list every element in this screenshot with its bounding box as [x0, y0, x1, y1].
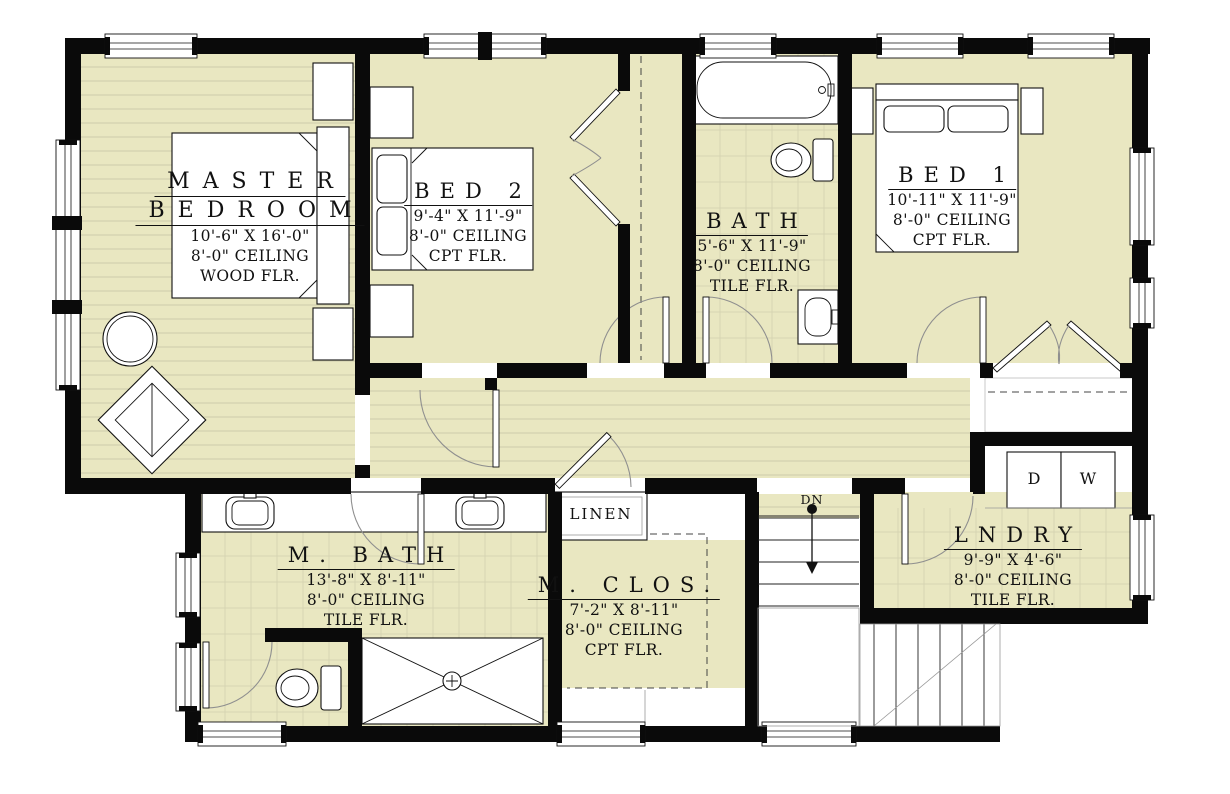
toilet [771, 139, 833, 181]
room-ceiling: 8'-0" CEILING [693, 256, 811, 276]
window [762, 722, 856, 746]
bathtub [690, 56, 838, 124]
wall [745, 492, 759, 726]
window-mullion [52, 300, 82, 314]
window [1028, 34, 1114, 58]
room-name: M. BATH [278, 542, 455, 570]
wall [65, 38, 1150, 54]
window [1130, 278, 1154, 328]
wall [664, 363, 682, 378]
wall [485, 378, 497, 390]
wall [970, 432, 985, 492]
wall [645, 478, 757, 494]
room-label-mclos: M. CLOS. 7'-2" X 8'-11" 8'-0" CEILING CP… [528, 572, 720, 660]
window [1130, 148, 1154, 245]
room-name: BATH [696, 208, 808, 236]
room-label-lndry: LNDRY 9'-9" X 4'-6" 8'-0" CEILING TILE F… [944, 522, 1082, 610]
mbath-vanity [202, 490, 546, 532]
wall [618, 224, 630, 363]
washer-label: W [1080, 469, 1096, 488]
wall [770, 363, 838, 378]
room-flooring: TILE FLR. [693, 276, 811, 296]
wall [860, 492, 874, 608]
nightstand [313, 308, 353, 360]
bath-sink [798, 290, 838, 344]
stairs-down-label: DN [801, 492, 824, 507]
room-label-bed1: BED 1 10'-11" X 11'-9" 8'-0" CEILING CPT… [887, 162, 1017, 250]
wall [852, 478, 905, 494]
room-name: BED 1 [888, 162, 1016, 190]
nightstand [851, 88, 873, 134]
bed1-closet [985, 378, 1133, 432]
wall [497, 363, 587, 378]
wall [355, 465, 370, 478]
room-ceiling: 8'-0" CEILING [887, 210, 1017, 230]
window [557, 722, 645, 746]
room-dimensions: 9'-4" X 11'-9" [404, 206, 532, 226]
wall [65, 478, 351, 494]
room-flooring: TILE FLR. [944, 590, 1082, 610]
room-ceiling: 8'-0" CEILING [278, 590, 455, 610]
wall [852, 363, 907, 378]
wall [618, 53, 630, 91]
nightstand [370, 87, 413, 138]
toilet [276, 666, 341, 710]
room-flooring: CPT FLR. [404, 246, 532, 266]
nightstand [1021, 88, 1043, 134]
room-dimensions: 10'-6" X 16'-0" [135, 226, 364, 246]
dryer-label: D [1028, 469, 1041, 488]
stairs-down-arrowhead [806, 562, 818, 574]
wall [370, 363, 422, 378]
room-dimensions: 10'-11" X 11'-9" [887, 190, 1017, 210]
shower [362, 638, 543, 724]
room-dimensions: 13'-8" X 8'-11" [278, 570, 455, 590]
room-name: BED 2 [404, 178, 532, 206]
room-dimensions: 5'-6" X 11'-9" [693, 236, 811, 256]
room-flooring: CPT FLR. [887, 230, 1017, 250]
room-name: BEDROOM [135, 197, 364, 226]
floor-plan-drawing [0, 0, 1230, 794]
room-name: LNDRY [944, 522, 1082, 550]
room-dimensions: 7'-2" X 8'-11" [528, 600, 720, 620]
room-label-master-bedroom: MASTER BEDROOM 10'-6" X 16'-0" 8'-0" CEI… [135, 168, 364, 286]
hall-floor [370, 378, 970, 478]
window [1130, 515, 1154, 600]
wall [980, 432, 1133, 446]
round-table [103, 312, 157, 366]
room-ceiling: 8'-0" CEILING [404, 226, 532, 246]
window [198, 722, 286, 746]
mclos-closet-floor [562, 688, 745, 726]
room-flooring: CPT FLR. [528, 640, 720, 660]
wall [696, 363, 706, 378]
room-label-bed2: BED 2 9'-4" X 11'-9" 8'-0" CEILING CPT F… [404, 178, 532, 266]
window-mullion [52, 216, 82, 230]
wall [980, 363, 993, 378]
floor-plan: MASTER BEDROOM 10'-6" X 16'-0" 8'-0" CEI… [0, 0, 1230, 794]
wall [838, 53, 852, 378]
room-label-mbath: M. BATH 13'-8" X 8'-11" 8'-0" CEILING TI… [278, 542, 455, 630]
wall [348, 628, 362, 740]
nightstand [313, 63, 353, 120]
room-label-bath: BATH 5'-6" X 11'-9" 8'-0" CEILING TILE F… [693, 208, 811, 296]
room-name: M. CLOS. [528, 572, 720, 600]
linen-label: LINEN [569, 505, 632, 523]
window [105, 34, 197, 58]
room-ceiling: 8'-0" CEILING [135, 246, 364, 266]
wall [1120, 363, 1133, 378]
window-mullion [478, 32, 492, 60]
room-ceiling: 8'-0" CEILING [944, 570, 1082, 590]
room-flooring: WOOD FLR. [135, 266, 364, 286]
window [56, 140, 80, 390]
room-name: MASTER [154, 168, 346, 197]
window [176, 553, 200, 617]
room-dimensions: 9'-9" X 4'-6" [944, 550, 1082, 570]
window [176, 643, 200, 711]
window [877, 34, 963, 58]
room-flooring: TILE FLR. [278, 610, 455, 630]
room-ceiling: 8'-0" CEILING [528, 620, 720, 640]
wall [421, 478, 555, 494]
wall [860, 608, 1148, 624]
wall [265, 628, 360, 642]
nightstand [370, 285, 413, 337]
window [700, 34, 776, 58]
